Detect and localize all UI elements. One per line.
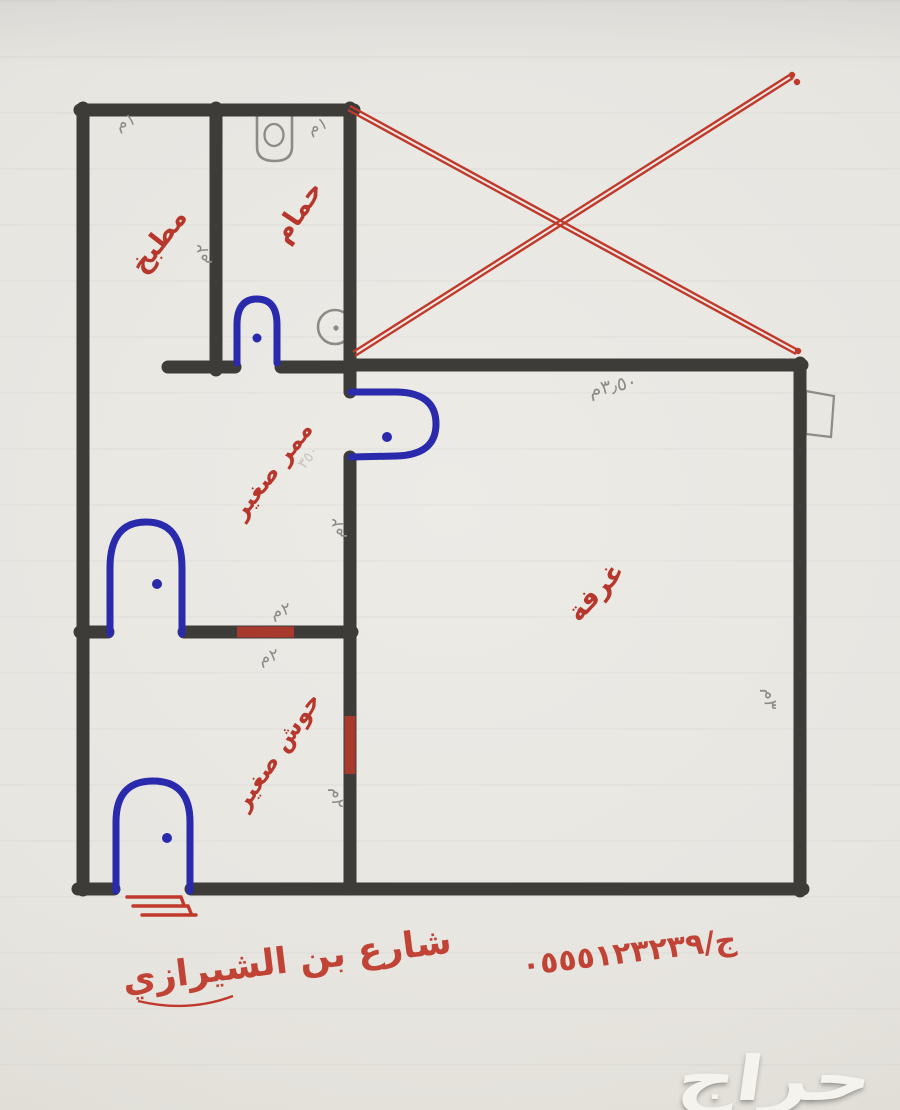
- red-cross: [348, 72, 801, 356]
- dim-yard-door: ٢م: [327, 788, 347, 808]
- red-door-mark-horizontal: [237, 627, 294, 638]
- door-arc-entrance: [116, 781, 190, 891]
- haraj-watermark-logo: حراج: [614, 1042, 900, 1110]
- door-arc-hall-to-room: [351, 392, 436, 457]
- red-door-mark-vertical: [345, 716, 356, 774]
- door-arc-bathroom: [237, 299, 277, 363]
- dim-hallway-height: ٢م: [328, 518, 348, 538]
- steps-icon: [127, 897, 196, 915]
- dim-room-height: ٣م: [760, 689, 781, 710]
- floorplan-photo: مطبخ حمام ممر صغير غرفة حوش صغير ١م ١م ٢…: [0, 0, 900, 1110]
- toilet-icon: [257, 112, 292, 161]
- dim-kitchen-height: ٢م: [193, 244, 213, 264]
- window-marker-icon: [806, 391, 834, 437]
- door-arc-yard-to-hall: [110, 522, 182, 634]
